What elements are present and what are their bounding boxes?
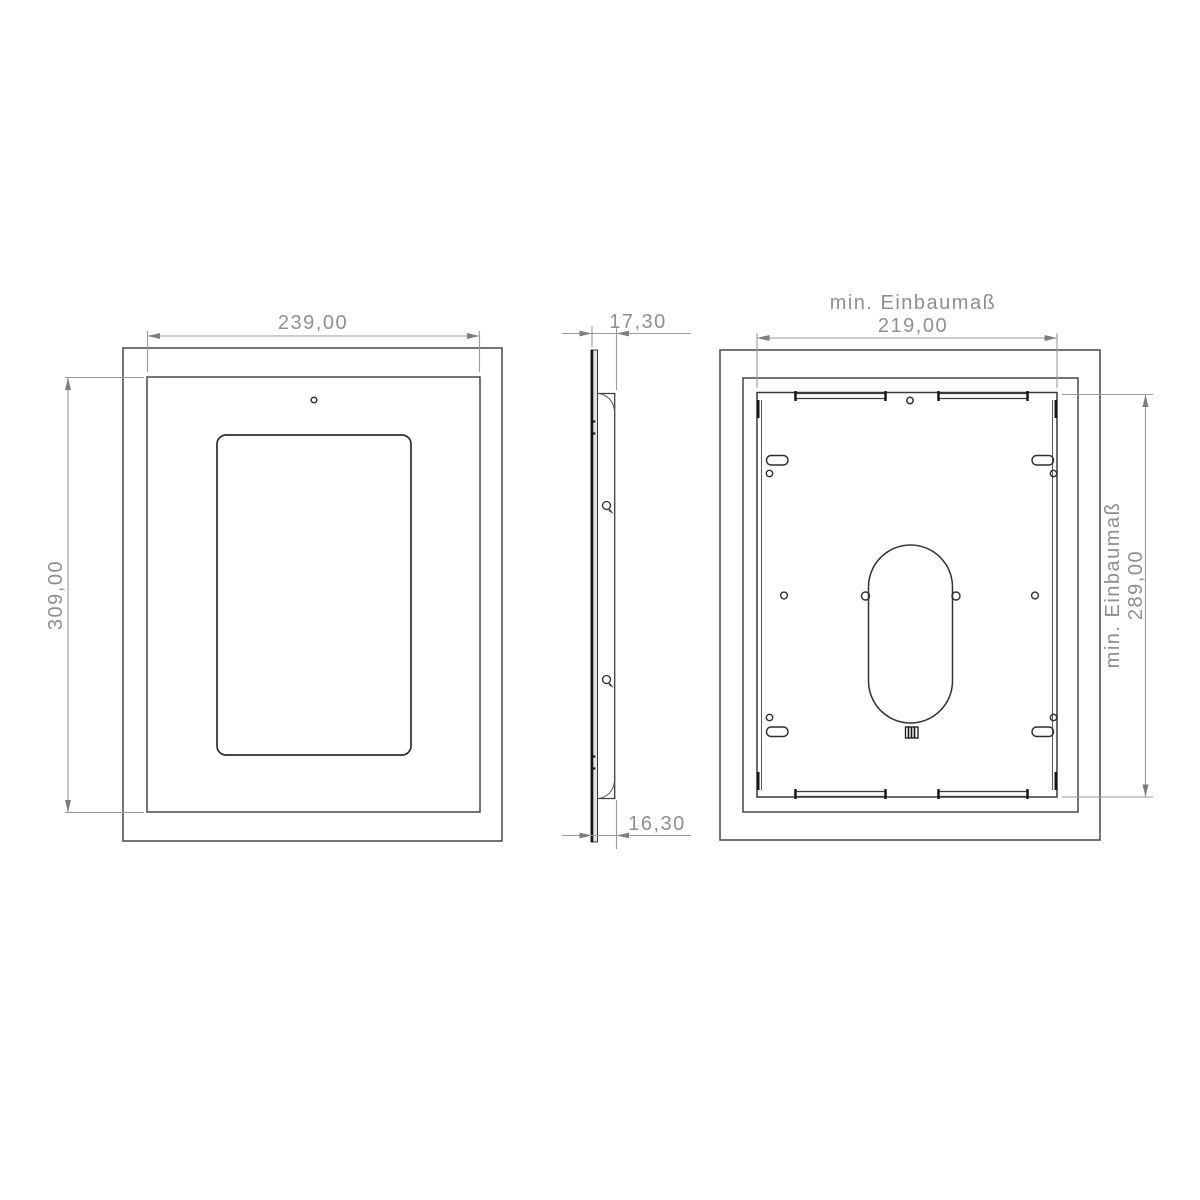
arrowhead-bottom [65, 800, 71, 813]
keyhole-loop [603, 502, 611, 510]
back-outer-frame [720, 350, 1100, 840]
keyhole-circle [766, 470, 772, 476]
side-bottom-depth-dimension: 16,30 [562, 800, 691, 849]
screw-hole [781, 592, 788, 599]
arrowhead-right [617, 833, 630, 839]
vent-slot [795, 792, 886, 797]
front-height-dimension-label: 309,00 [45, 560, 67, 630]
front-width-dimension-label: 239,00 [278, 312, 348, 334]
side-keyhole-profile-upper [603, 502, 614, 515]
keyhole-circle [1050, 470, 1056, 476]
technical-drawing-page: 239,00 309,00 [0, 0, 1200, 1200]
arrowhead-right [1045, 335, 1058, 341]
keyhole-circle [1050, 714, 1056, 720]
side-bottom-fillet [599, 781, 615, 799]
side-top-fillet [599, 394, 615, 412]
arrowhead-left [580, 833, 593, 839]
middle-screw-holes [781, 592, 1039, 600]
keyhole-circle [766, 714, 772, 720]
side-keyhole-profile-lower [603, 676, 614, 689]
back-width-dimension: min. Einbaumaß 219,00 [757, 292, 1057, 388]
back-height-dimension-title: min. Einbaumaß [1102, 502, 1124, 669]
camera-hole [311, 397, 317, 403]
keyhole-tail [609, 683, 614, 689]
vent-slot [938, 792, 1028, 797]
arrowhead-top [1143, 395, 1149, 408]
back-width-dimension-title: min. Einbaumaß [830, 292, 997, 314]
back-height-dimension: min. Einbaumaß 289,00 [1062, 395, 1153, 798]
connector-hatch-block [906, 727, 919, 738]
cable-cutout-oval [869, 545, 953, 723]
camera-hole-back [907, 397, 913, 403]
keyhole-slot-bottom-left [766, 714, 788, 736]
back-width-dimension-label: 219,00 [878, 315, 948, 337]
tablet-screen-opening [217, 435, 411, 755]
keyhole-pill [767, 727, 789, 737]
front-face-plate [147, 377, 480, 812]
side-view: 17,30 16,30 [562, 311, 691, 849]
keyhole-pill [767, 456, 789, 466]
corner-slot-ticks [758, 400, 1056, 790]
drawing-svg: 239,00 309,00 [0, 0, 1200, 1200]
front-height-dimension: 309,00 [45, 378, 144, 813]
side-bottom-depth-label: 16,30 [628, 813, 686, 835]
arrowhead-left [580, 331, 593, 337]
side-top-depth-dimension: 17,30 [562, 311, 691, 390]
vent-slot [795, 394, 886, 399]
back-housing-box [743, 378, 1078, 812]
keyhole-pill [1032, 727, 1054, 737]
keyhole-loop [603, 676, 611, 684]
back-height-dimension-label: 289,00 [1125, 550, 1147, 620]
keyhole-slot-top-left [766, 456, 788, 477]
arrowhead-left [757, 335, 770, 341]
front-outer-frame [123, 348, 502, 841]
keyhole-pill [1032, 456, 1054, 466]
arrowhead-bottom [1143, 785, 1149, 798]
arrowhead-right [467, 333, 480, 339]
back-view: min. Einbaumaß 219,00 min. Einbaumaß 289… [720, 292, 1153, 840]
keyhole-tail [609, 509, 614, 515]
screw-hole [1032, 592, 1039, 599]
side-top-depth-label: 17,30 [609, 311, 667, 333]
arrowhead-top [65, 378, 71, 391]
front-width-dimension: 239,00 [148, 312, 480, 372]
arrowhead-left [148, 333, 161, 339]
back-inner-box [757, 393, 1057, 798]
front-view: 239,00 309,00 [45, 312, 502, 841]
vent-slot [938, 394, 1028, 399]
